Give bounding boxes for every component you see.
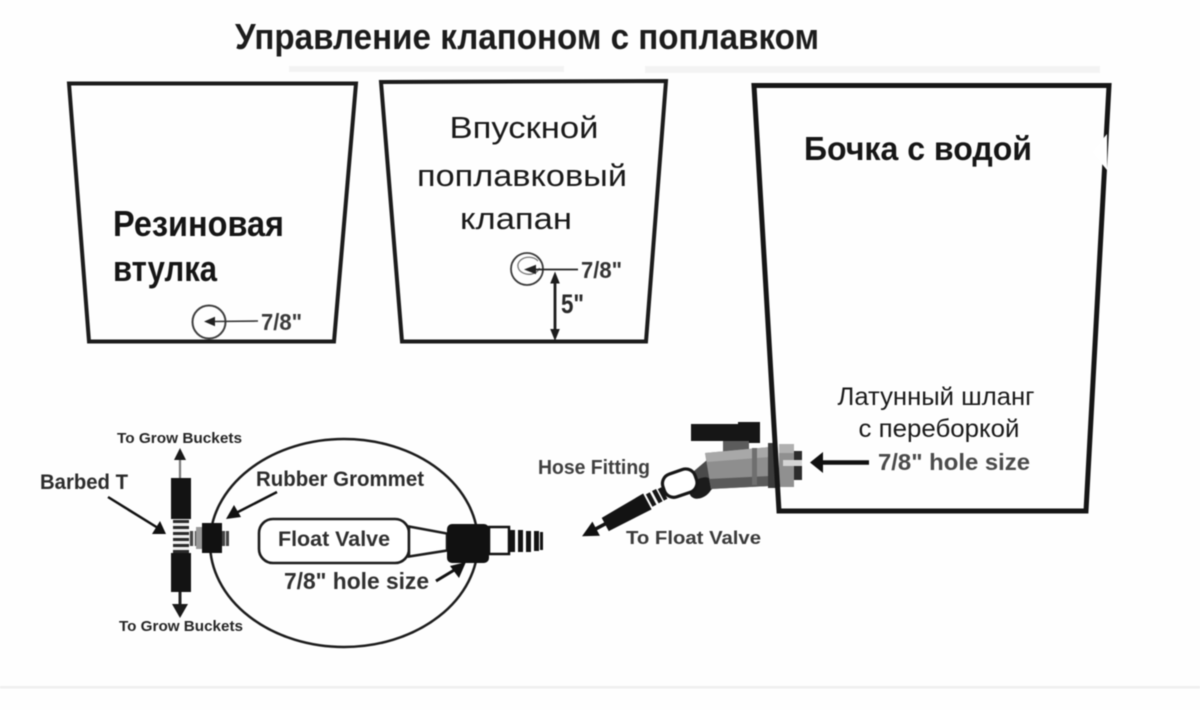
svg-text:Float Valve: Float Valve	[278, 528, 390, 551]
svg-text:5": 5"	[561, 289, 584, 319]
svg-text:Резиновая: Резиновая	[113, 203, 284, 244]
svg-text:Бочка с водой: Бочка с водой	[804, 130, 1032, 167]
svg-text:поплавковый: поплавковый	[417, 158, 627, 193]
svg-text:Rubber Grommet: Rubber Grommet	[256, 468, 424, 491]
svg-text:клапан: клапан	[460, 201, 572, 236]
svg-text:с переборкой: с переборкой	[859, 415, 1020, 443]
svg-text:7/8": 7/8"	[261, 309, 302, 335]
svg-text:Латунный шланг: Латунный шланг	[838, 383, 1035, 411]
svg-text:7/8" hole size: 7/8" hole size	[284, 568, 429, 594]
svg-text:Управление клапоном с поплавко: Управление клапоном с поплавком	[235, 16, 819, 57]
svg-text:Hose Fitting: Hose Fitting	[538, 457, 650, 479]
svg-text:To Float Valve: To Float Valve	[626, 528, 761, 548]
svg-text:Впускной: Впускной	[450, 110, 599, 145]
svg-text:втулка: втулка	[113, 248, 218, 289]
svg-text:Barbed T: Barbed T	[40, 471, 128, 494]
svg-text:To Grow Buckets: To Grow Buckets	[117, 430, 242, 447]
svg-text:7/8" hole size: 7/8" hole size	[878, 449, 1030, 475]
svg-text:7/8": 7/8"	[581, 257, 622, 283]
svg-text:To Grow Buckets: To Grow Buckets	[119, 618, 243, 635]
